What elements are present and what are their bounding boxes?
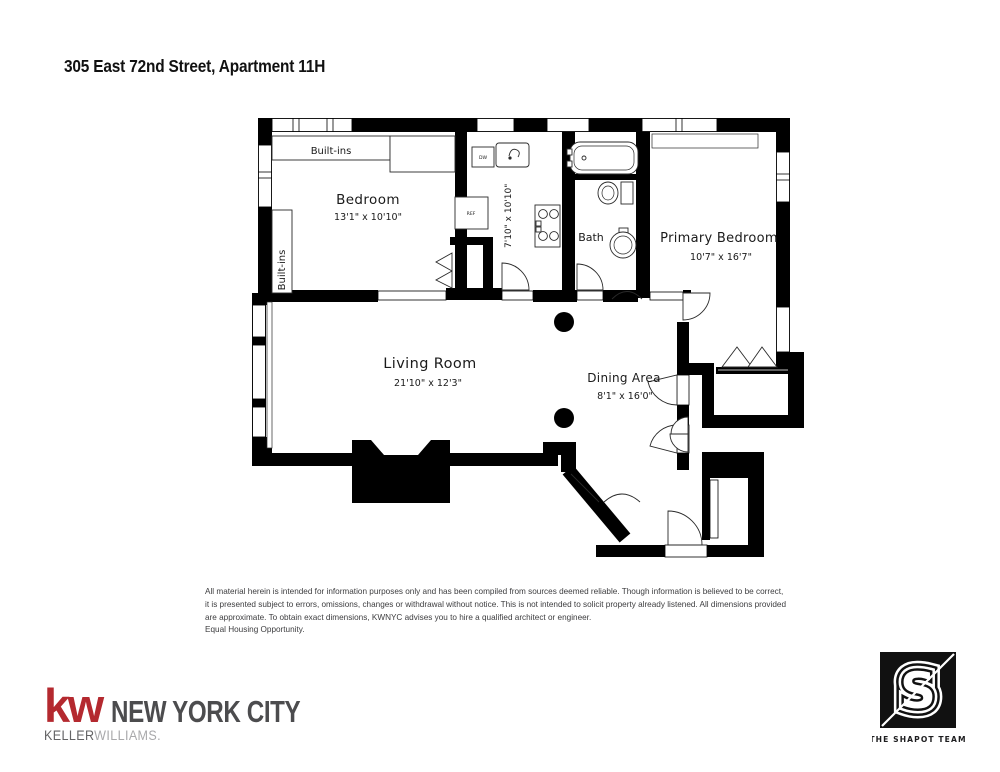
kitchen-dims: 7'10" x 10'10" <box>504 184 514 248</box>
column-icon <box>554 408 574 428</box>
dining-doorway-a <box>677 375 689 405</box>
living-window-sill <box>267 302 272 448</box>
kw-mark: kw <box>44 684 102 728</box>
built-ins-side-label: Built-ins <box>277 250 288 291</box>
kitchen-window-icon <box>477 119 514 132</box>
bedroom-closet-bifold-icon <box>436 253 452 271</box>
entry-door-icon <box>668 511 702 545</box>
disclaimer-line: Equal Housing Opportunity. <box>205 624 855 637</box>
primary-bedroom-label: Primary Bedroom <box>660 231 778 246</box>
hall-opening <box>650 292 683 300</box>
bath-label: Bath <box>578 231 604 244</box>
dishwasher-label: DW <box>479 155 488 161</box>
wall-openings <box>378 291 718 557</box>
kw-city-label: NEW YORK CITY <box>111 696 300 727</box>
bedroom-dims: 13'1" x 10'10" <box>334 212 402 223</box>
bath-window-icon <box>547 119 589 132</box>
living-window-1-icon <box>253 305 266 337</box>
kitchen-door-icon <box>502 263 529 290</box>
primary-window-icon <box>642 119 717 132</box>
primary-side-window-2-icon <box>777 307 790 352</box>
walls <box>252 118 804 557</box>
column-icon <box>554 312 574 332</box>
floor-plan: Bedroom 13'1" x 10'10" Built-ins Built-i… <box>0 0 1000 772</box>
primary-side-window-1-icon <box>777 152 790 202</box>
disclaimer-line: are approximate. To obtain exact dimensi… <box>205 612 855 625</box>
columns <box>554 312 574 428</box>
bedroom-opening <box>378 291 446 300</box>
bedroom-step-box <box>390 136 455 172</box>
kitchen-doorway <box>502 291 533 300</box>
bedroom-side-window-icon <box>259 145 272 207</box>
primary-bedroom-dims: 10'7" x 16'7" <box>690 252 752 263</box>
primary-sill <box>652 134 758 148</box>
living-room-dims: 21'10" x 12'3" <box>394 378 462 389</box>
living-window-3-icon <box>253 407 266 437</box>
foyer-arch-icon <box>604 494 640 502</box>
living-room-label: Living Room <box>383 356 476 372</box>
kitchen-sink-icon <box>496 143 529 167</box>
foyer-closet-slider <box>710 480 718 538</box>
built-ins-top-label: Built-ins <box>311 146 352 157</box>
living-window-2-icon <box>253 345 266 399</box>
bedroom-window-icon <box>272 119 352 132</box>
toilet-tank-icon <box>621 182 633 204</box>
bedroom-label: Bedroom <box>336 192 400 208</box>
keller-williams-label: KELLERWILLIAMS. <box>44 728 332 743</box>
team-name-label: THE SHAPOT TEAM <box>872 735 967 744</box>
bath-doorway <box>577 291 603 300</box>
disclaimer: All material herein is intended for info… <box>205 586 855 637</box>
kw-logo: kw NEW YORK CITY KELLERWILLIAMS. <box>44 684 353 743</box>
bath-door-icon <box>577 264 603 290</box>
primary-closet-bifold-icon <box>722 347 752 367</box>
entry-doorway <box>665 545 707 557</box>
disclaimer-line: it is presented subject to errors, omiss… <box>205 599 855 612</box>
shapot-team-logo: S S S S S THE SHAPOT TEAM <box>872 648 982 753</box>
refrigerator-label: REF <box>467 211 476 217</box>
primary-door-icon <box>683 293 710 320</box>
dining-area-dims: 8'1" x 16'0" <box>597 391 653 402</box>
hall-closet-door-1-icon <box>671 417 688 434</box>
floorplan-page: 305 East 72nd Street, Apartment 11H <box>0 0 1000 772</box>
disclaimer-line: All material herein is intended for info… <box>205 586 855 599</box>
dining-area-label: Dining Area <box>587 371 660 385</box>
